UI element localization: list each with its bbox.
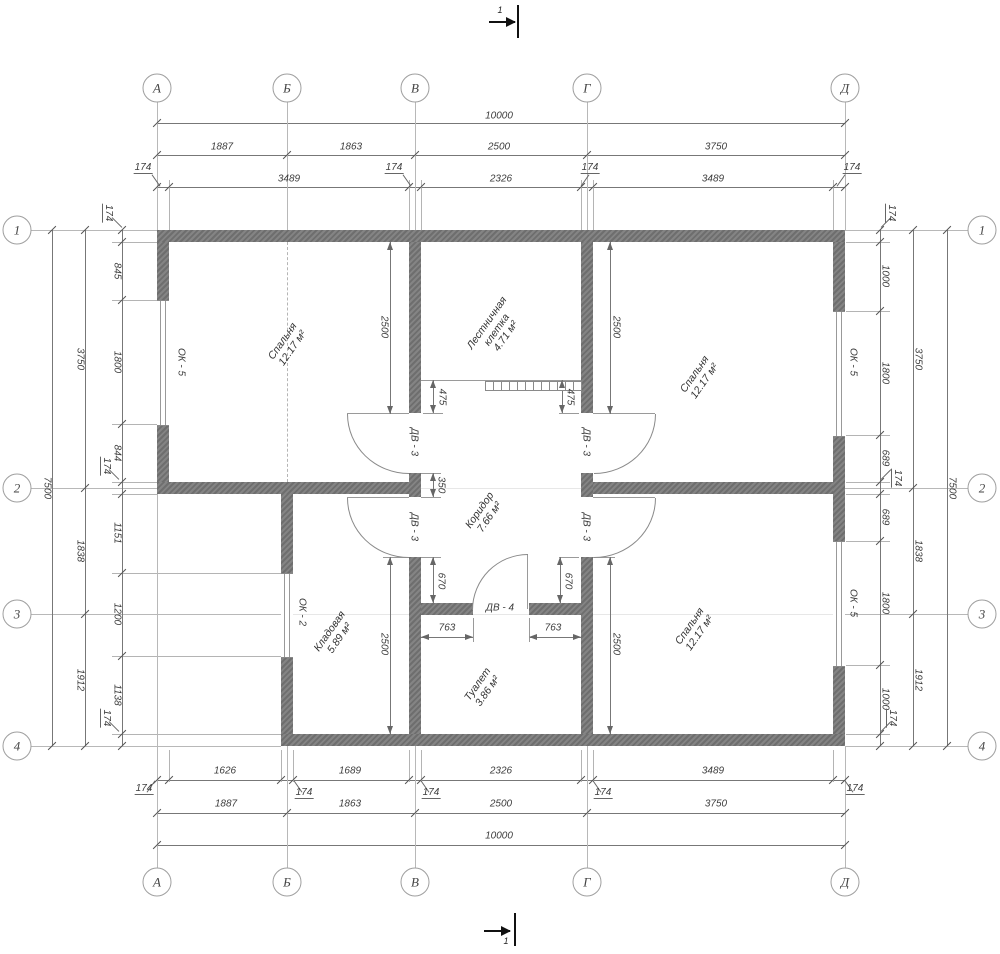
window (157, 300, 169, 426)
window (833, 311, 845, 437)
dim-left-chain: 844 (112, 445, 123, 462)
room-label: Лестничная клетка4.71 м² (463, 291, 531, 368)
line (846, 242, 890, 243)
dim-interior: 2500 (379, 316, 390, 338)
line (157, 123, 845, 124)
axis-circle: 2 (3, 474, 32, 503)
dim-leader-slash (152, 174, 161, 186)
dim-top-chain: 3489 (702, 174, 724, 185)
line (122, 230, 123, 746)
dim-left-total: 7500 (42, 477, 53, 499)
dim-top-chain: 174 (843, 162, 862, 174)
line (415, 746, 416, 868)
dim-right-total: 7500 (947, 477, 958, 499)
line (880, 230, 881, 746)
dim-right-chain: 174 (891, 469, 903, 488)
dim-left-chain: 174 (102, 204, 114, 223)
window (833, 541, 845, 667)
dim-arrow (559, 380, 565, 388)
wall (409, 557, 421, 734)
line (415, 102, 416, 230)
dim-bottom-span: 1863 (339, 799, 361, 810)
dim-top-span: 2500 (488, 142, 510, 153)
line (157, 155, 845, 156)
dim-right-chain: 174 (886, 709, 898, 728)
door-swing-arc (594, 498, 656, 558)
line (845, 230, 968, 231)
dim-right-chain: 1800 (880, 362, 891, 384)
dim-left-chain: 1151 (112, 522, 123, 544)
dim-arrow (607, 406, 613, 414)
wall (581, 557, 593, 734)
section-arrowhead (506, 17, 516, 27)
dim-interior: 2500 (379, 633, 390, 655)
wall (833, 242, 845, 311)
dim-bottom-chain: 174 (135, 783, 154, 795)
floor-plan-canvas: 1000018871863250037501743489174232617434… (0, 0, 1000, 954)
dim-interior: 670 (436, 573, 447, 590)
line (846, 482, 890, 483)
dim-arrow (559, 405, 565, 413)
dim-top-chain: 174 (134, 162, 153, 174)
dim-interior: 475 (565, 389, 576, 406)
dim-right-chain: 1800 (880, 592, 891, 614)
dim-interior: 763 (545, 623, 562, 634)
dim-right-span: 1838 (913, 540, 924, 562)
dim-arrow (387, 242, 393, 250)
line (845, 614, 968, 615)
wall (421, 603, 473, 615)
dim-arrow (387, 726, 393, 734)
window (281, 573, 293, 658)
dim-right-chain: 1000 (880, 265, 891, 287)
wall (157, 424, 169, 482)
dim-bottom-chain: 3489 (702, 766, 724, 777)
dim-left-chain: 1800 (112, 351, 123, 373)
door-label-dv3: ДВ - 3 (581, 512, 592, 542)
wall (409, 242, 421, 413)
door-label-dv4: ДВ - 4 (485, 603, 515, 614)
dim-arrow (465, 634, 473, 640)
dim-left-chain: 1138 (112, 684, 123, 706)
line (112, 734, 282, 735)
dim-top-chain: 174 (385, 162, 404, 174)
dim-interior: 763 (439, 623, 456, 634)
axis-circle: А (143, 868, 172, 897)
axis-circle: Б (273, 868, 302, 897)
dim-bottom-chain: 174 (295, 787, 314, 799)
room-label: Туалет3.86 м² (463, 666, 503, 710)
dim-right-chain: 1000 (880, 688, 891, 710)
wall (593, 482, 845, 494)
axis-circle: В (401, 74, 430, 103)
dim-bottom-chain: 174 (422, 787, 441, 799)
line (473, 618, 474, 642)
wall (409, 473, 421, 497)
wall (833, 435, 845, 541)
axis-circle: 2 (968, 474, 997, 503)
line (423, 413, 443, 414)
axis-circle: Г (573, 74, 602, 103)
dim-bottom-chain: 174 (846, 783, 865, 795)
wall (281, 656, 293, 734)
room-label: Спальня12.17 м² (267, 321, 310, 369)
door-swing-arc (347, 414, 409, 474)
dim-right-span: 3750 (913, 348, 924, 370)
dim-arrow (557, 557, 563, 565)
dim-right-chain: 174 (885, 204, 897, 223)
dim-top-chain: 2326 (490, 174, 512, 185)
line (846, 494, 890, 495)
dim-top-span: 1887 (211, 142, 233, 153)
door-label-dv3: ДВ - 3 (581, 427, 592, 457)
dim-left-chain: 174 (100, 709, 112, 728)
axis-circle: 4 (3, 732, 32, 761)
line (390, 242, 391, 414)
room-label: Спальня12.17 м² (679, 354, 722, 402)
door-swing-arc (347, 498, 409, 558)
dim-right-chain: 689 (880, 509, 891, 526)
wall (281, 494, 293, 573)
line (514, 913, 516, 946)
line (287, 102, 288, 230)
wall (529, 603, 581, 615)
dim-interior: 2500 (611, 633, 622, 655)
line (157, 780, 845, 781)
dim-right-chain: 689 (880, 450, 891, 467)
line (846, 665, 890, 666)
axis-circle: Д (831, 868, 860, 897)
axis-circle: 4 (968, 732, 997, 761)
line (587, 746, 588, 868)
dim-left-span: 1838 (75, 540, 86, 562)
dim-left-chain: 174 (100, 457, 112, 476)
line (421, 497, 441, 498)
dim-top-span: 3750 (705, 142, 727, 153)
dim-left-span: 1912 (75, 669, 86, 691)
axis-circle: 1 (968, 216, 997, 245)
line (390, 557, 391, 734)
line (559, 413, 579, 414)
dim-arrow (430, 595, 436, 603)
axis-circle: 3 (968, 600, 997, 629)
line (112, 656, 282, 657)
dim-left-chain: 1200 (112, 603, 123, 625)
dim-interior: 475 (437, 389, 448, 406)
window-label-ok2: ОК - 2 (297, 598, 308, 626)
dim-arrow (421, 634, 429, 640)
door-label-dv3: ДВ - 3 (409, 512, 420, 542)
window-label-ok5: ОК - 5 (848, 348, 859, 376)
section-mark-label: 1 (503, 936, 508, 946)
dim-arrow (430, 380, 436, 388)
dim-left-span: 3750 (75, 348, 86, 370)
axis-circle: Г (573, 868, 602, 897)
line (846, 541, 890, 542)
line (112, 573, 282, 574)
axis-circle: Б (273, 74, 302, 103)
wall (157, 242, 169, 300)
dim-top-span: 1863 (340, 142, 362, 153)
dim-bottom-span: 3750 (705, 799, 727, 810)
section-mark-label: 1 (497, 5, 502, 15)
axis-circle: 3 (3, 600, 32, 629)
dim-bottom-chain: 1626 (214, 766, 236, 777)
line (31, 614, 281, 615)
window-label-ok5: ОК - 5 (848, 589, 859, 617)
line (846, 734, 890, 735)
wall (157, 482, 409, 494)
dim-bottom-span: 2500 (490, 799, 512, 810)
dim-arrow (607, 242, 613, 250)
dim-bottom-chain: 1689 (339, 766, 361, 777)
dim-interior: 670 (563, 573, 574, 590)
line (846, 435, 890, 436)
wall (157, 230, 845, 242)
dim-arrow (529, 634, 537, 640)
axis-circle: 1 (3, 216, 32, 245)
dim-arrow (387, 406, 393, 414)
dim-arrow (607, 557, 613, 565)
line (157, 845, 845, 846)
dim-interior: 2500 (611, 316, 622, 338)
dim-arrow (430, 405, 436, 413)
axis-circle: А (143, 74, 172, 103)
dim-arrow (573, 634, 581, 640)
door-swing-arc (594, 414, 656, 474)
dim-leader-slash (403, 174, 412, 186)
line (845, 746, 968, 747)
dim-bottom-span: 1887 (215, 799, 237, 810)
room-label: Коридор7.66 м² (464, 491, 506, 538)
axis-circle: В (401, 868, 430, 897)
axis-circle: Д (831, 74, 860, 103)
line (157, 813, 845, 814)
dim-arrow (430, 557, 436, 565)
wall (581, 473, 593, 497)
dim-bottom-total: 10000 (485, 831, 513, 842)
dim-bottom-chain: 174 (594, 787, 613, 799)
dim-top-total: 10000 (485, 111, 513, 122)
dim-leader-slash (881, 469, 892, 480)
dim-top-chain: 3489 (278, 174, 300, 185)
dim-top-chain: 174 (581, 162, 600, 174)
section-arrowhead (501, 926, 511, 936)
dim-interior: 350 (436, 477, 447, 494)
room-label: Кладовая5.89 м² (312, 609, 357, 660)
dim-right-span: 1912 (913, 669, 924, 691)
line (157, 187, 845, 188)
dim-arrow (557, 595, 563, 603)
line (846, 311, 890, 312)
line (287, 746, 288, 868)
dim-left-chain: 845 (112, 263, 123, 280)
line (517, 5, 519, 38)
line (845, 746, 846, 868)
window-label-ok5: ОК - 5 (176, 348, 187, 376)
wall (581, 242, 593, 413)
dim-bottom-chain: 2326 (490, 766, 512, 777)
wall (833, 665, 845, 734)
dim-arrow (387, 557, 393, 565)
dim-arrow (607, 726, 613, 734)
door-label-dv3: ДВ - 3 (409, 427, 420, 457)
line (31, 746, 281, 747)
wall (281, 734, 845, 746)
